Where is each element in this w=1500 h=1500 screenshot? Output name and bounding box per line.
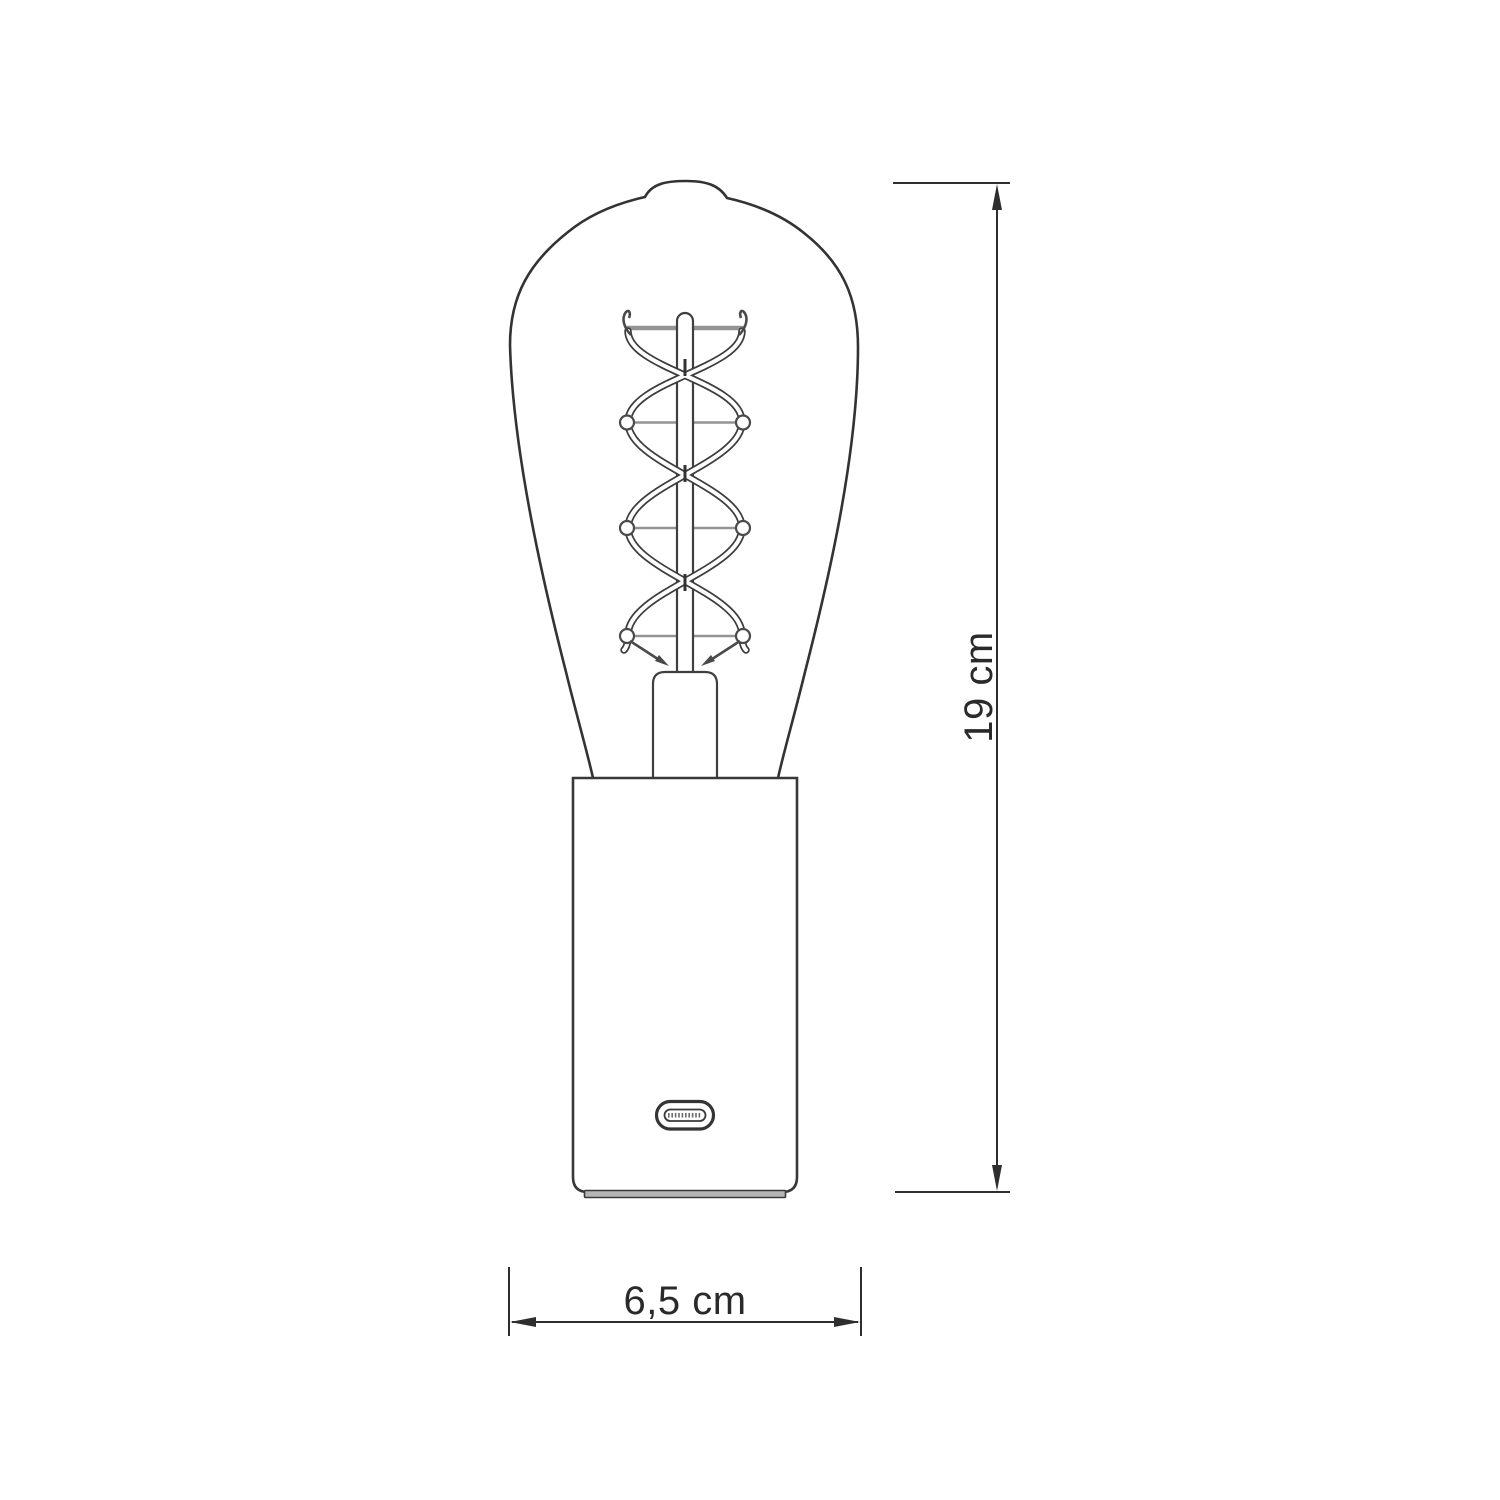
base-bottom-rim bbox=[585, 1191, 786, 1198]
width-dimension-label: 6,5 cm bbox=[623, 1279, 746, 1323]
arrowhead-up bbox=[992, 184, 1002, 210]
lead-wire-arrowhead bbox=[701, 655, 715, 666]
height-dimension-label: 19 cm bbox=[957, 631, 1001, 742]
arrowhead-right bbox=[834, 1317, 860, 1327]
width-dimension: 6,5 cm bbox=[509, 1267, 861, 1336]
bead bbox=[620, 521, 634, 535]
drawing-canvas: 19 cm 6,5 cm bbox=[0, 0, 1500, 1500]
lamp-dimension-drawing: 19 cm 6,5 cm bbox=[0, 0, 1500, 1500]
bead bbox=[736, 416, 750, 430]
arrowhead-down bbox=[992, 1165, 1002, 1191]
bead bbox=[620, 416, 634, 430]
arrowhead-left bbox=[510, 1317, 536, 1327]
usb-c-port bbox=[657, 1102, 714, 1130]
height-dimension: 19 cm bbox=[893, 183, 1010, 1192]
lead-wire-arrowhead bbox=[655, 655, 669, 666]
glass-stem-mount bbox=[653, 672, 717, 778]
lamp-base bbox=[573, 778, 797, 1198]
bead bbox=[736, 521, 750, 535]
filament-assembly bbox=[620, 311, 750, 778]
